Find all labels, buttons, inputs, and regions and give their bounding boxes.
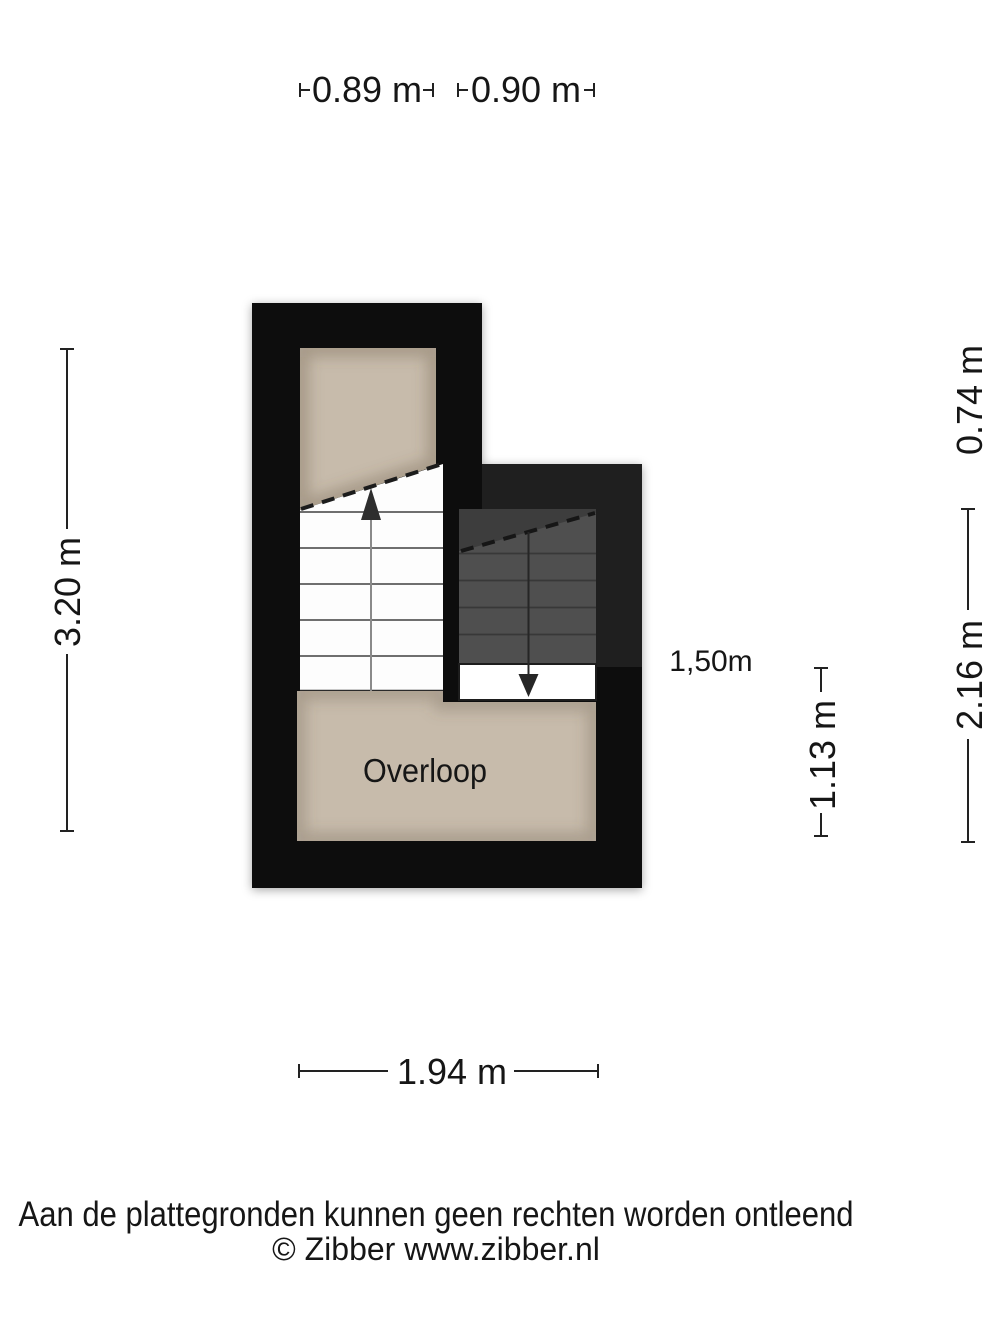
svg-text:0.89 m: 0.89 m [312,69,422,110]
svg-text:1,50m: 1,50m [669,645,752,678]
svg-text:Overloop: Overloop [363,752,487,789]
svg-text:3.20 m: 3.20 m [47,537,88,647]
svg-text:© Zibber www.zibber.nl: © Zibber www.zibber.nl [272,1231,600,1267]
svg-text:1.13 m: 1.13 m [802,700,843,810]
svg-text:1.94 m: 1.94 m [397,1051,507,1092]
svg-text:2.16 m: 2.16 m [949,620,990,730]
svg-text:0.74 m: 0.74 m [949,345,990,455]
svg-text:0.90 m: 0.90 m [471,69,581,110]
svg-text:Aan de plattegronden kunnen ge: Aan de plattegronden kunnen geen rechten… [19,1195,854,1234]
